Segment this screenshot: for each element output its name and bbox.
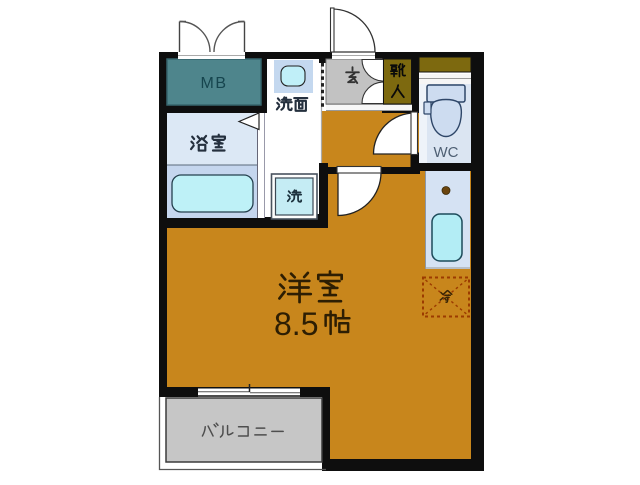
svg-text:MB: MB [201,75,228,92]
svg-text:8.5: 8.5 [274,306,318,342]
svg-text:WC: WC [434,144,459,161]
